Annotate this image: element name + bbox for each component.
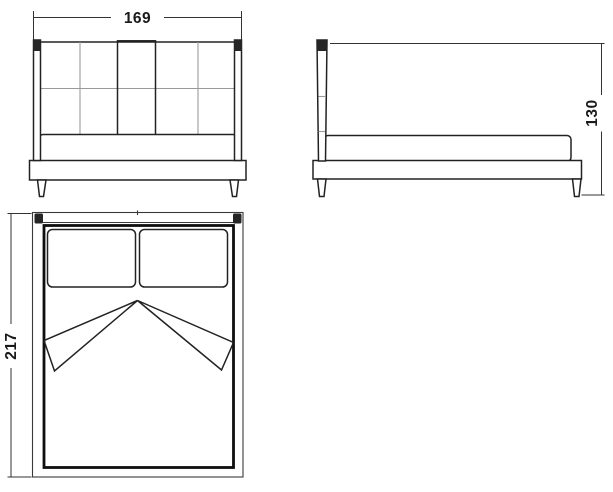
post-top-view-right bbox=[233, 214, 242, 224]
technical-drawing-canvas: 169 bbox=[0, 0, 613, 492]
bed-drawing-svg: 169 bbox=[0, 0, 613, 492]
bed-frame-outline-top bbox=[33, 213, 244, 478]
dimension-width-label: 169 bbox=[124, 10, 151, 27]
bed-base-front bbox=[30, 161, 247, 181]
blanket-fold-left bbox=[44, 301, 138, 372]
side-view: 130 bbox=[313, 40, 605, 197]
dimension-length-label: 217 bbox=[3, 332, 20, 359]
blanket-fold-right bbox=[138, 301, 234, 371]
front-view: 169 bbox=[30, 10, 247, 197]
side-leg-front bbox=[318, 179, 327, 197]
pillow-right bbox=[140, 230, 228, 288]
headboard-post-right-cap bbox=[235, 40, 242, 51]
headboard-profile bbox=[317, 40, 327, 161]
dimension-height-label: 130 bbox=[584, 99, 601, 126]
mattress-side bbox=[324, 136, 571, 162]
side-leg-back bbox=[573, 179, 582, 197]
bed-base-side bbox=[313, 161, 582, 180]
front-leg-right bbox=[230, 180, 239, 197]
headboard-post-left bbox=[34, 40, 41, 161]
dimension-width: 169 bbox=[34, 10, 242, 40]
top-view: 217 bbox=[3, 211, 243, 477]
mattress-front bbox=[39, 135, 237, 162]
dimension-length: 217 bbox=[3, 214, 32, 478]
post-top-view-left bbox=[35, 214, 44, 224]
headboard-post-left-cap bbox=[34, 40, 41, 51]
pillow-left bbox=[48, 230, 136, 288]
headboard-post-right bbox=[235, 40, 242, 161]
front-leg-left bbox=[38, 180, 47, 197]
headboard-profile-cap bbox=[317, 40, 327, 51]
